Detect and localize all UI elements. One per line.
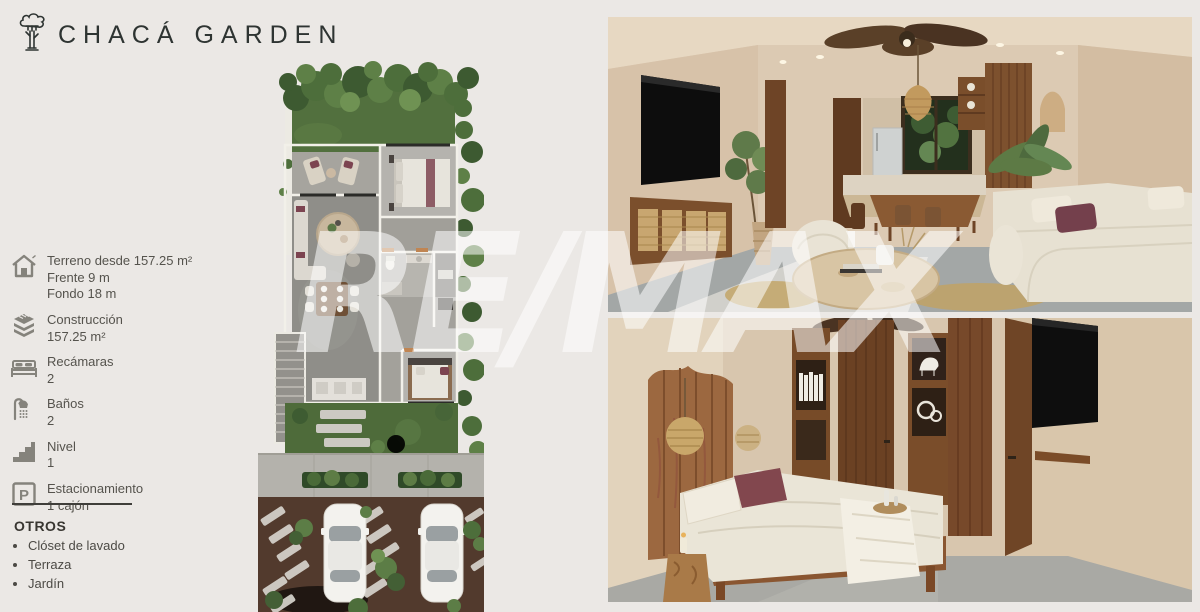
sectional-sofa: [989, 183, 1192, 302]
stairs-icon: [10, 438, 38, 466]
bed-2: [408, 358, 452, 400]
spec-line: 1: [47, 455, 76, 472]
spec-line: Recámaras: [47, 354, 113, 371]
laundry-counters: [312, 378, 366, 400]
spec-nivel: Nivel 1: [10, 438, 255, 472]
list-item: Clóset de lavado: [28, 538, 125, 554]
spec-line: Terreno desde 157.25 m²: [47, 253, 192, 270]
floor-plan-render: [258, 60, 484, 612]
spec-line: Construcción: [47, 312, 123, 329]
construction-layers-icon: [10, 311, 38, 339]
spec-line: Estacionamiento: [47, 481, 143, 498]
living-room-photo: [608, 17, 1192, 312]
house-plan: [275, 145, 457, 443]
spec-banos: Baños 2: [10, 395, 255, 429]
front-garden: [285, 403, 458, 454]
bed-1: [389, 155, 450, 211]
rattan-console: [630, 197, 732, 265]
spec-line: 157.25 m²: [47, 329, 123, 346]
list-item: Jardín: [28, 576, 125, 592]
door: [765, 80, 786, 228]
sidewalk: [258, 453, 484, 497]
spec-line: 2: [47, 413, 84, 430]
spec-terreno: Terreno desde 157.25 m² Frente 9 m Fondo…: [10, 252, 255, 303]
spec-line: Nivel: [47, 439, 76, 456]
spec-line: Frente 9 m: [47, 270, 192, 287]
flyer-canvas: CHACÁ GARDEN Terreno desde 157.25 m² Fre…: [0, 0, 1200, 612]
page-title: CHACÁ GARDEN: [58, 21, 343, 50]
spec-line: Baños: [47, 396, 84, 413]
shower-icon: [10, 395, 38, 423]
spec-recamaras: Recámaras 2: [10, 353, 255, 387]
others-list: Clóset de lavado Terraza Jardín: [14, 538, 125, 592]
spec-estacionamiento: P Estacionamiento 1 cajón: [10, 480, 255, 514]
tv-screen: [641, 75, 720, 185]
others-title: OTROS: [14, 518, 125, 534]
tv-screen: [1032, 318, 1098, 428]
door: [1005, 318, 1032, 556]
spec-line: 2: [47, 371, 113, 388]
driveway: [258, 497, 484, 612]
brand-header: CHACÁ GARDEN: [16, 12, 343, 59]
spec-construccion: Construcción 157.25 m²: [10, 311, 255, 345]
side-hedge: [454, 121, 484, 459]
spec-line: 1 cajón: [47, 498, 143, 515]
parking-letter: P: [19, 487, 29, 504]
spec-list: Terreno desde 157.25 m² Frente 9 m Fondo…: [10, 252, 255, 522]
spec-line: Fondo 18 m: [47, 286, 192, 303]
bed-icon: [10, 353, 38, 381]
house-icon: [10, 252, 38, 280]
others-section: OTROS Clóset de lavado Terraza Jardín: [14, 518, 125, 595]
bedroom-photo: [608, 318, 1192, 602]
section-divider: [12, 503, 132, 505]
tree-icon: [16, 12, 48, 59]
car: [418, 504, 466, 602]
list-item: Terraza: [28, 557, 125, 573]
car: [321, 504, 369, 602]
